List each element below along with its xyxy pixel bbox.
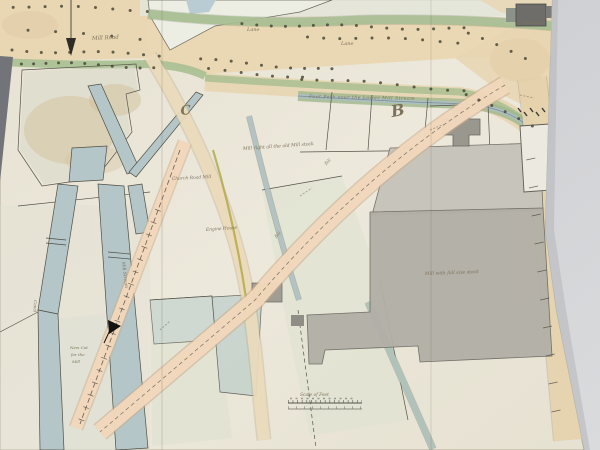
map-canvas: Scale of Feet B C Mill Road Lane Lane Fo… bbox=[0, 0, 600, 450]
annotation-water-1: New Cut bbox=[69, 345, 88, 350]
annotation-lane-2: Lane bbox=[340, 41, 354, 47]
annotation-canal: Canal bbox=[33, 300, 38, 313]
annotation-water-2: for the bbox=[70, 352, 85, 357]
photographed-map: Scale of Feet B C Mill Road Lane Lane Fo… bbox=[0, 0, 600, 450]
scale-label: Scale of Feet bbox=[300, 393, 329, 398]
annotation-lane-1: Lane bbox=[246, 27, 260, 33]
annotation-water-3: Mill bbox=[71, 359, 81, 364]
small-building-2 bbox=[291, 315, 304, 326]
annotation-st-house: St House bbox=[524, 20, 543, 25]
courtyard bbox=[520, 124, 551, 192]
